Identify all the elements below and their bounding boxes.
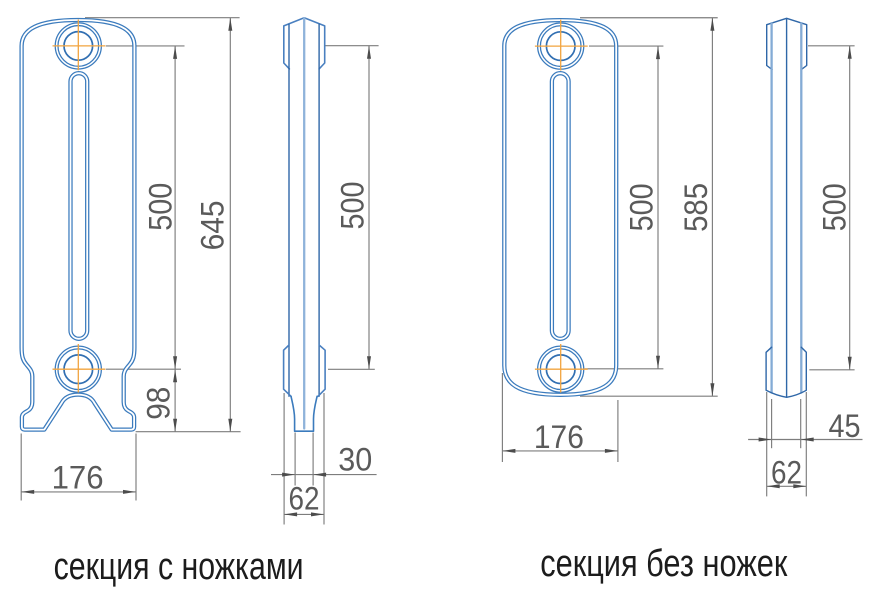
svg-text:45: 45 (829, 408, 861, 444)
svg-text:585: 585 (678, 183, 714, 232)
svg-text:98: 98 (141, 387, 177, 420)
svg-text:176: 176 (52, 460, 104, 496)
svg-text:500: 500 (142, 183, 178, 231)
svg-text:30: 30 (338, 441, 372, 477)
svg-text:62: 62 (289, 481, 320, 517)
svg-text:секция с ножками: секция с ножками (54, 546, 304, 588)
svg-text:500: 500 (817, 183, 853, 231)
svg-text:500: 500 (624, 183, 660, 231)
svg-text:62: 62 (771, 454, 802, 490)
svg-text:176: 176 (534, 419, 584, 455)
svg-text:секция без ножек: секция без ножек (540, 543, 787, 585)
svg-text:645: 645 (195, 200, 231, 250)
svg-text:500: 500 (334, 182, 370, 230)
